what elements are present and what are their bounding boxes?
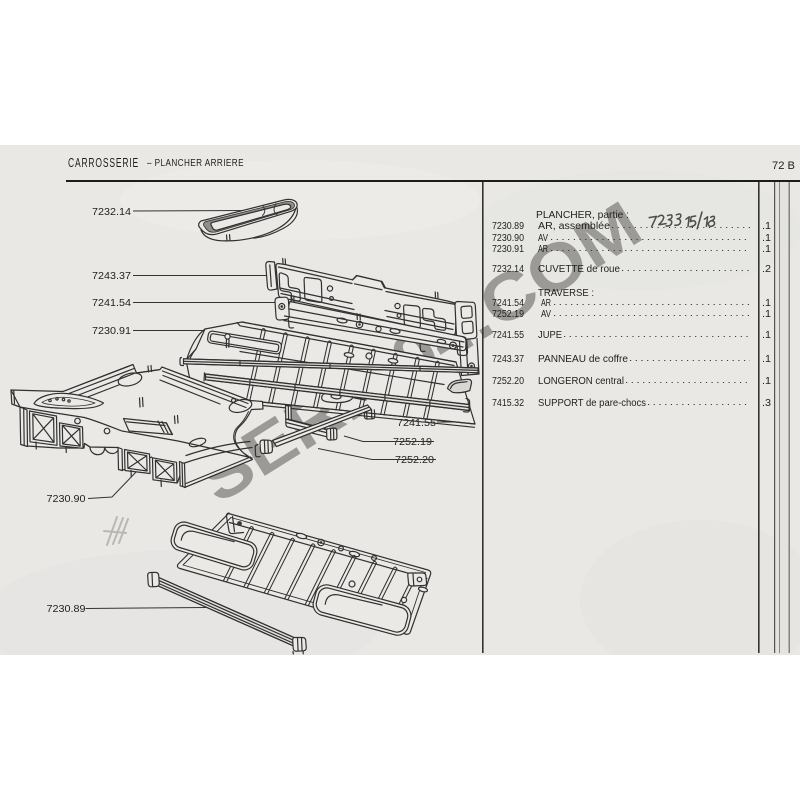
svg-text:.1: .1 [762,233,771,244]
svg-text:7252.20: 7252.20 [492,376,524,387]
svg-text:7243.37: 7243.37 [492,354,524,365]
svg-text:7230.90: 7230.90 [47,493,86,505]
svg-text:.1: .1 [762,354,771,365]
svg-text:7230.91: 7230.91 [492,244,524,255]
svg-text:PANNEAU de coffre: PANNEAU de coffre [538,354,628,365]
svg-text:7232.14: 7232.14 [492,264,524,275]
svg-text:7241.54: 7241.54 [92,297,131,309]
svg-text:7232.14: 7232.14 [92,206,131,218]
svg-text:AR: AR [541,298,551,309]
svg-text:JUPE: JUPE [538,330,562,341]
svg-text:.1: .1 [762,298,771,309]
svg-text:.1: .1 [762,221,771,232]
svg-text:AR, assemblée: AR, assemblée [538,221,610,232]
svg-text:.3: .3 [762,398,771,409]
svg-text:7241.54: 7241.54 [492,298,524,309]
svg-text:CUVETTE de roue: CUVETTE de roue [538,264,620,275]
svg-text:.1: .1 [762,309,771,320]
svg-text:LONGERON central: LONGERON central [538,376,624,387]
svg-text:AV: AV [541,309,551,320]
svg-text:7243.37: 7243.37 [92,270,131,282]
svg-text:AR: AR [538,244,548,255]
svg-text:7415.32: 7415.32 [492,398,524,409]
svg-text:7230.90: 7230.90 [492,233,524,244]
svg-text:7230.91: 7230.91 [92,325,131,337]
svg-text:7252.19: 7252.19 [492,309,524,320]
svg-text:.1: .1 [762,330,771,341]
svg-text:72 B: 72 B [772,160,795,172]
svg-text:– PLANCHER ARRIERE: – PLANCHER ARRIERE [147,158,244,169]
svg-text:.1: .1 [762,244,771,255]
svg-text:CARROSSERIE: CARROSSERIE [68,156,139,170]
svg-text:7230.89: 7230.89 [47,603,86,615]
svg-text:7241.55: 7241.55 [492,330,524,341]
svg-text:7230.89: 7230.89 [492,221,524,232]
svg-text:PLANCHER, partie :: PLANCHER, partie : [536,210,629,221]
svg-text:.1: .1 [762,376,771,387]
svg-text:AV: AV [538,233,548,244]
svg-text:.2: .2 [762,264,771,275]
svg-text:SUPPORT de pare-chocs: SUPPORT de pare-chocs [538,398,646,409]
